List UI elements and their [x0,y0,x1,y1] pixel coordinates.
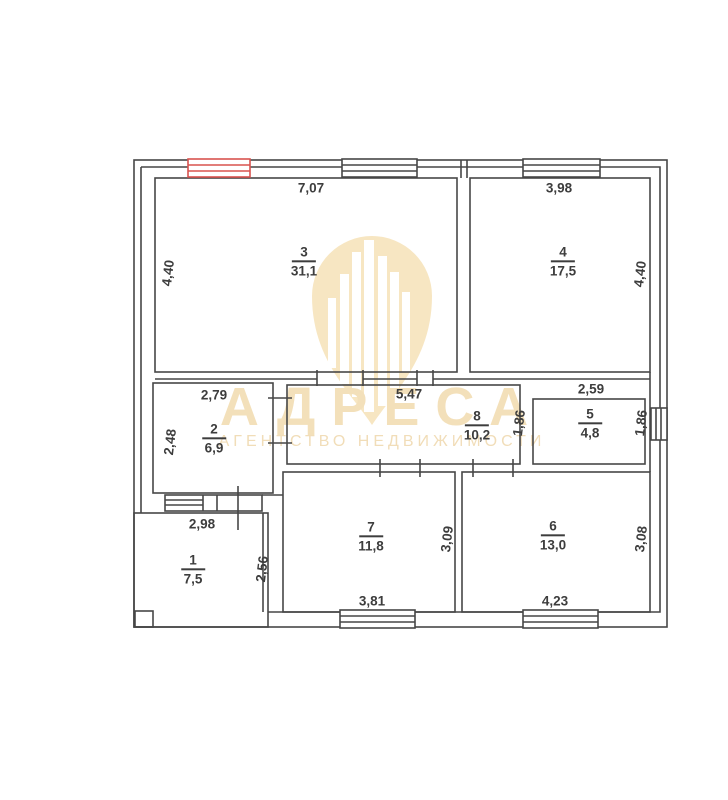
dim-room8-height: 1,86 [510,409,528,437]
dim-room6-width: 4,23 [542,594,568,609]
dim-room7-width: 3,81 [359,594,385,609]
room-area: 10,2 [464,427,490,444]
room-5-label: 5 4,8 [578,406,602,441]
room-3-label: 3 31,1 [291,244,317,279]
room-2-label: 2 6,9 [202,421,226,456]
dim-room8-width: 5,47 [396,387,422,402]
dim-room5-height: 1,86 [632,409,650,437]
dim-room2-width: 2,79 [201,388,227,403]
room-area: 17,5 [550,263,576,280]
dim-room3-width: 7,07 [298,181,324,196]
room-8-label: 8 10,2 [464,408,490,443]
dim-room5-width: 2,59 [578,382,604,397]
dim-room4-height: 4,40 [631,260,649,288]
room-area: 6,9 [202,440,226,457]
room-area: 31,1 [291,263,317,280]
room-number: 4 [551,244,575,262]
dim-room7-height: 3,09 [438,525,456,553]
floor-plan-page: АДРЕСА АГЕНТСТВО НЕДВИЖИМОСТИ [0,0,728,800]
room-number: 3 [292,244,316,262]
room-area: 13,0 [540,537,566,554]
room-number: 2 [202,421,226,439]
room-7-label: 7 11,8 [358,519,384,554]
room-6-label: 6 13,0 [540,518,566,553]
room-area: 7,5 [181,571,205,588]
dim-room6-height: 3,08 [632,525,650,553]
room-4-label: 4 17,5 [550,244,576,279]
dim-room1-height: 2,56 [253,555,271,583]
room-area: 4,8 [578,425,602,442]
room-number: 5 [578,406,602,424]
room-number: 6 [541,518,565,536]
room-number: 8 [465,408,489,426]
room-area: 11,8 [358,538,384,555]
dim-room1-width: 2,98 [189,517,215,532]
dim-room2-height: 2,48 [161,428,179,456]
room-1-label: 1 7,5 [181,552,205,587]
room-number: 7 [359,519,383,537]
plan-labels: 3 31,1 4 17,5 2 6,9 8 10,2 5 4,8 7 11,8 … [0,0,728,800]
dim-room3-height: 4,40 [159,259,177,287]
room-number: 1 [181,552,205,570]
dim-room4-width: 3,98 [546,181,572,196]
